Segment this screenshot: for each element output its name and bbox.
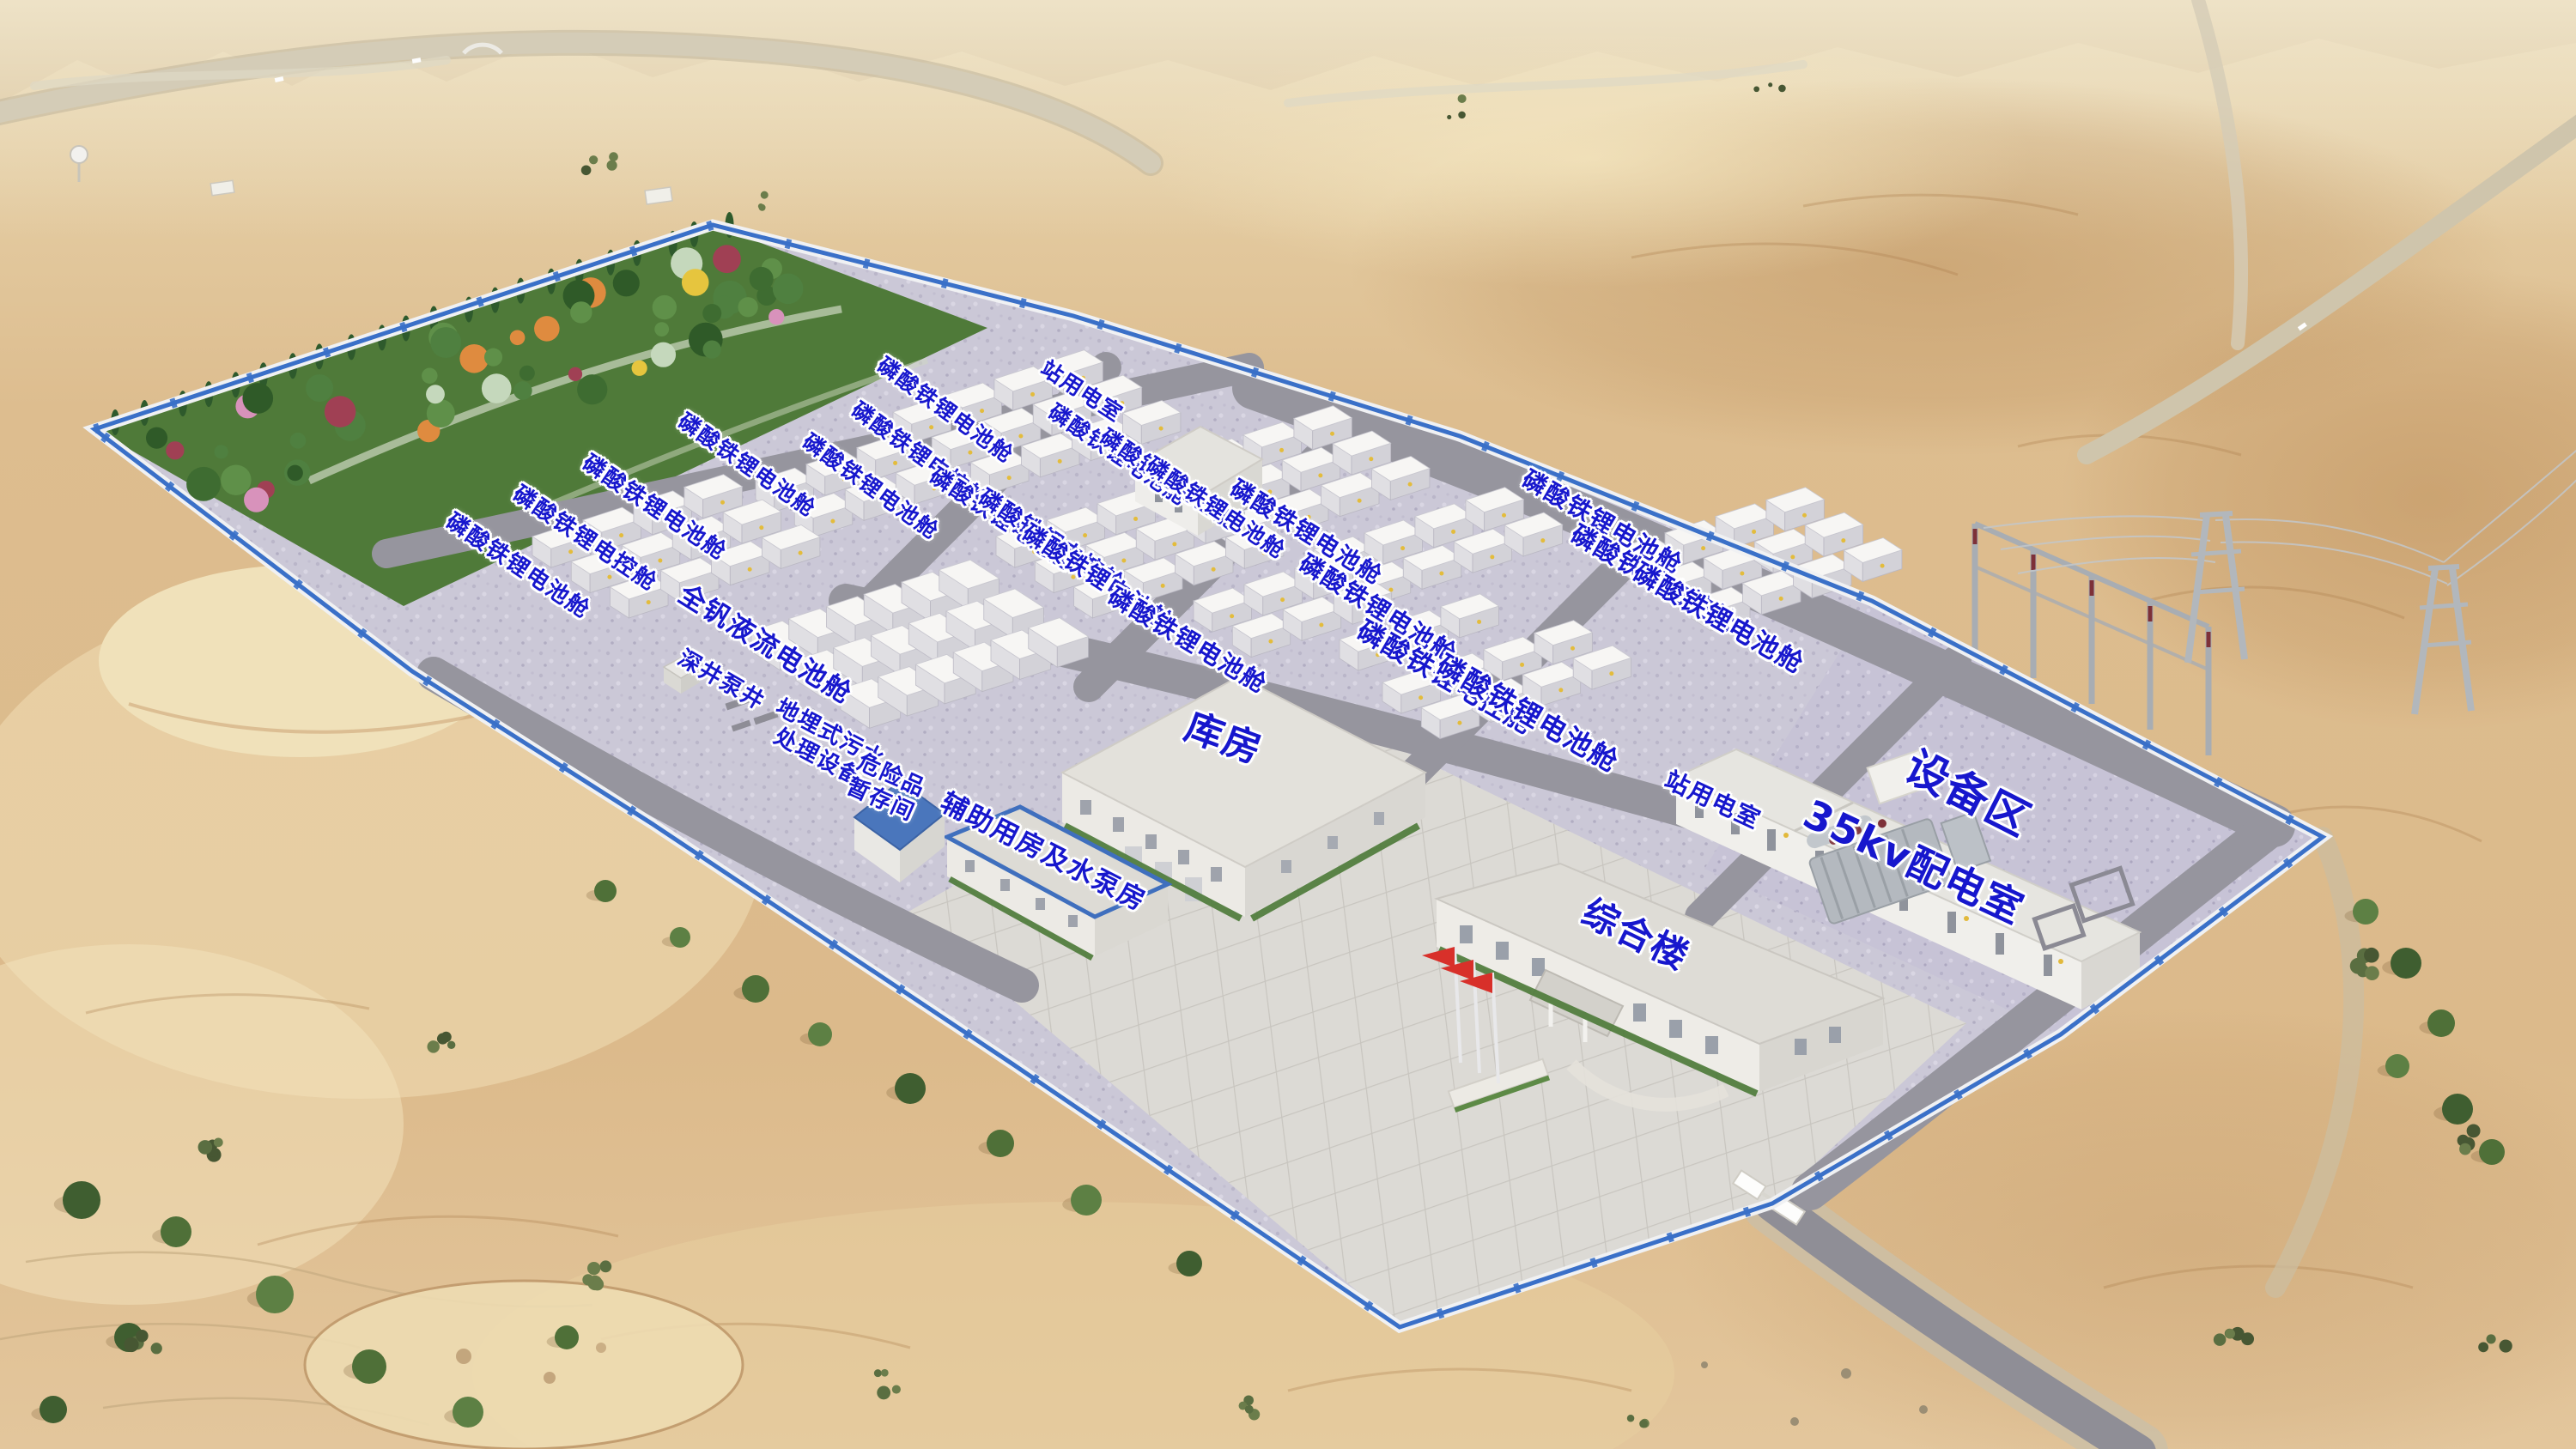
- shed: [645, 187, 672, 204]
- aerial-site-render: 磷酸铁锂电池舱磷酸铁锂电控舱磷酸铁锂电池舱磷酸铁锂电池舱磷酸铁锂电池舱磷酸铁锂电…: [0, 0, 2576, 1449]
- water-tower: [70, 146, 88, 163]
- shed: [210, 180, 234, 195]
- terrain-illustration: [0, 0, 2576, 1449]
